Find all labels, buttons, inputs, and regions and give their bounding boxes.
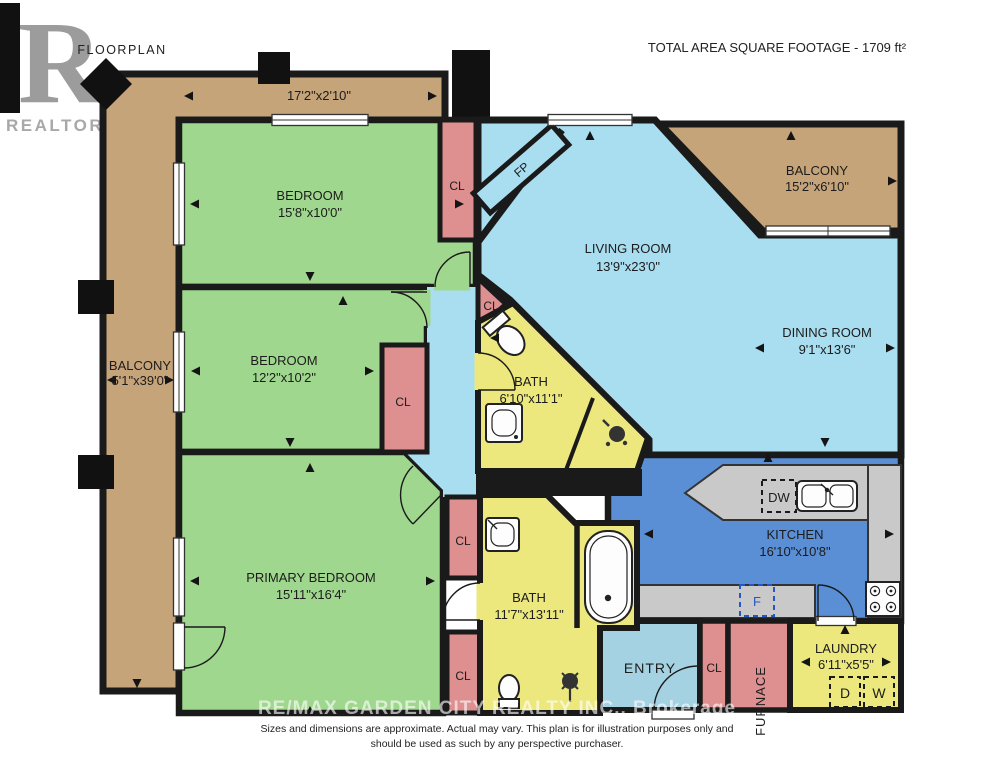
- bedroom1-area: [179, 120, 476, 287]
- primary-bedroom-dims: 15'11"x16'4": [276, 587, 347, 602]
- kitchen-dims: 16'10"x10'8": [759, 544, 831, 559]
- window: [548, 115, 632, 126]
- balcony-right-label: BALCONY: [786, 163, 848, 178]
- bathtub-icon: [585, 531, 632, 623]
- balcony-top-dims: 17'2"x2'10": [287, 88, 351, 103]
- kitchen-label: KITCHEN: [766, 527, 823, 542]
- window: [174, 163, 185, 245]
- balcony-left-label: BALCONY: [109, 358, 171, 373]
- bath-lower-dims: 11'7"x13'11": [494, 607, 564, 622]
- kitchen-sink-icon: [797, 481, 857, 511]
- bedroom2-label: BEDROOM: [250, 353, 317, 368]
- furnace-label: FURNACE: [753, 666, 768, 736]
- closet-triangle-label: CL: [483, 299, 499, 313]
- living-room-label: LIVING ROOM: [585, 241, 672, 256]
- realtor-logo-r-icon: R: [18, 0, 105, 128]
- pillar: [78, 455, 114, 489]
- closet4-label: CL: [455, 669, 471, 683]
- window: [272, 115, 368, 126]
- fridge-label: F: [753, 594, 761, 609]
- stove-icon: [866, 582, 900, 616]
- bedroom1-label: BEDROOM: [276, 188, 343, 203]
- closet1-label: CL: [449, 179, 465, 193]
- closet5-label: CL: [706, 661, 722, 675]
- bath-upper-label: BATH: [514, 374, 548, 389]
- bedroom2-dims: 12'2"x10'2": [252, 370, 316, 385]
- window: [766, 226, 890, 236]
- balcony-left-dims: 5'1"x39'0": [112, 373, 169, 388]
- floorplan-page: R REALTOR®: [0, 0, 1000, 767]
- bath-upper-dims: 6'10"x11'1": [499, 391, 562, 406]
- total-area-text: TOTAL AREA SQUARE FOOTAGE - 1709 ft²: [648, 40, 907, 55]
- washer-label: W: [872, 685, 886, 701]
- dishwasher-label: DW: [768, 490, 790, 505]
- brokerage-watermark: RE/MAX GARDEN CITY REALTY INC., Brokerag…: [258, 698, 736, 719]
- entry-label: ENTRY: [624, 660, 676, 676]
- laundry-dims: 6'11"x5'5": [818, 657, 874, 672]
- realtor-logo-bar: [0, 3, 20, 113]
- closet3-label: CL: [455, 534, 471, 548]
- floorplan-canvas: R REALTOR®: [0, 0, 1000, 767]
- primary-bedroom-label: PRIMARY BEDROOM: [246, 570, 376, 585]
- bath-sink-icon: [486, 518, 519, 551]
- living-room-dims: 13'9"x23'0": [596, 259, 660, 274]
- laundry-label: LAUNDRY: [815, 641, 877, 656]
- bedroom1-dims: 15'8"x10'0": [278, 205, 342, 220]
- window: [174, 538, 185, 616]
- window: [174, 332, 185, 412]
- balcony-right-dims: 15'2"x6'10": [785, 179, 849, 194]
- closet2-label: CL: [395, 395, 411, 409]
- bath-sink-icon: [486, 404, 522, 442]
- pillar: [78, 280, 114, 314]
- dryer-label: D: [840, 685, 850, 701]
- door-bath-lower: [443, 583, 484, 620]
- disclaimer-line1: Sizes and dimensions are approximate. Ac…: [261, 723, 734, 735]
- pillar: [258, 52, 290, 84]
- floorplan-title: FLOORPLAN: [77, 43, 166, 57]
- disclaimer-line2: should be used as such by any perspectiv…: [371, 738, 624, 750]
- dining-room-label: DINING ROOM: [782, 325, 872, 340]
- dining-room-dims: 9'1"x13'6": [799, 342, 856, 357]
- bath-lower-label: BATH: [512, 590, 546, 605]
- pillar: [452, 50, 490, 122]
